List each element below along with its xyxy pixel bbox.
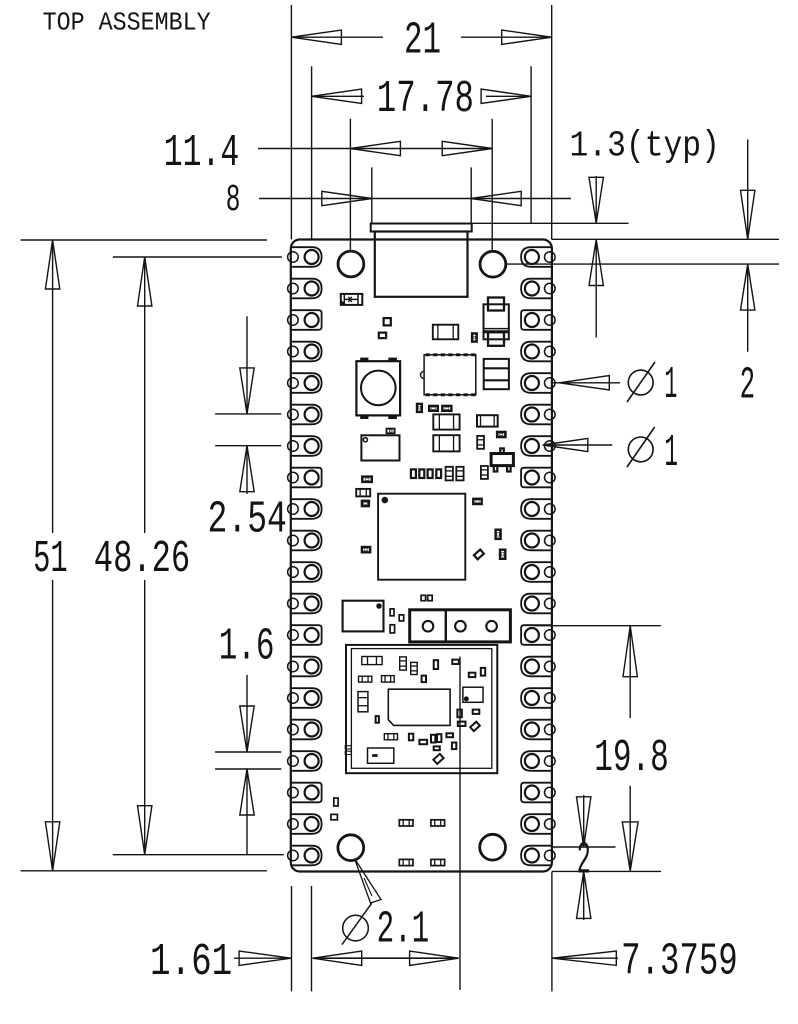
svg-text:51: 51 bbox=[33, 533, 68, 585]
svg-text:48.26: 48.26 bbox=[94, 533, 190, 585]
svg-text:TOP ASSEMBLY: TOP ASSEMBLY bbox=[43, 8, 211, 38]
svg-text:2.1: 2.1 bbox=[377, 904, 430, 956]
svg-text:21: 21 bbox=[404, 15, 441, 67]
svg-text:7.3759: 7.3759 bbox=[621, 935, 738, 987]
svg-text:11.4: 11.4 bbox=[164, 127, 240, 179]
svg-text:8: 8 bbox=[226, 179, 241, 222]
svg-text:1.3(typ): 1.3(typ) bbox=[570, 126, 720, 167]
svg-text:1: 1 bbox=[664, 359, 677, 411]
svg-text:1: 1 bbox=[664, 427, 678, 479]
svg-text:1.6: 1.6 bbox=[219, 620, 275, 672]
svg-text:2: 2 bbox=[740, 360, 756, 412]
svg-text:17.78: 17.78 bbox=[377, 73, 474, 125]
svg-text:19.8: 19.8 bbox=[594, 732, 669, 784]
svg-text:2.54: 2.54 bbox=[208, 494, 287, 546]
svg-text:1.61: 1.61 bbox=[150, 936, 232, 988]
